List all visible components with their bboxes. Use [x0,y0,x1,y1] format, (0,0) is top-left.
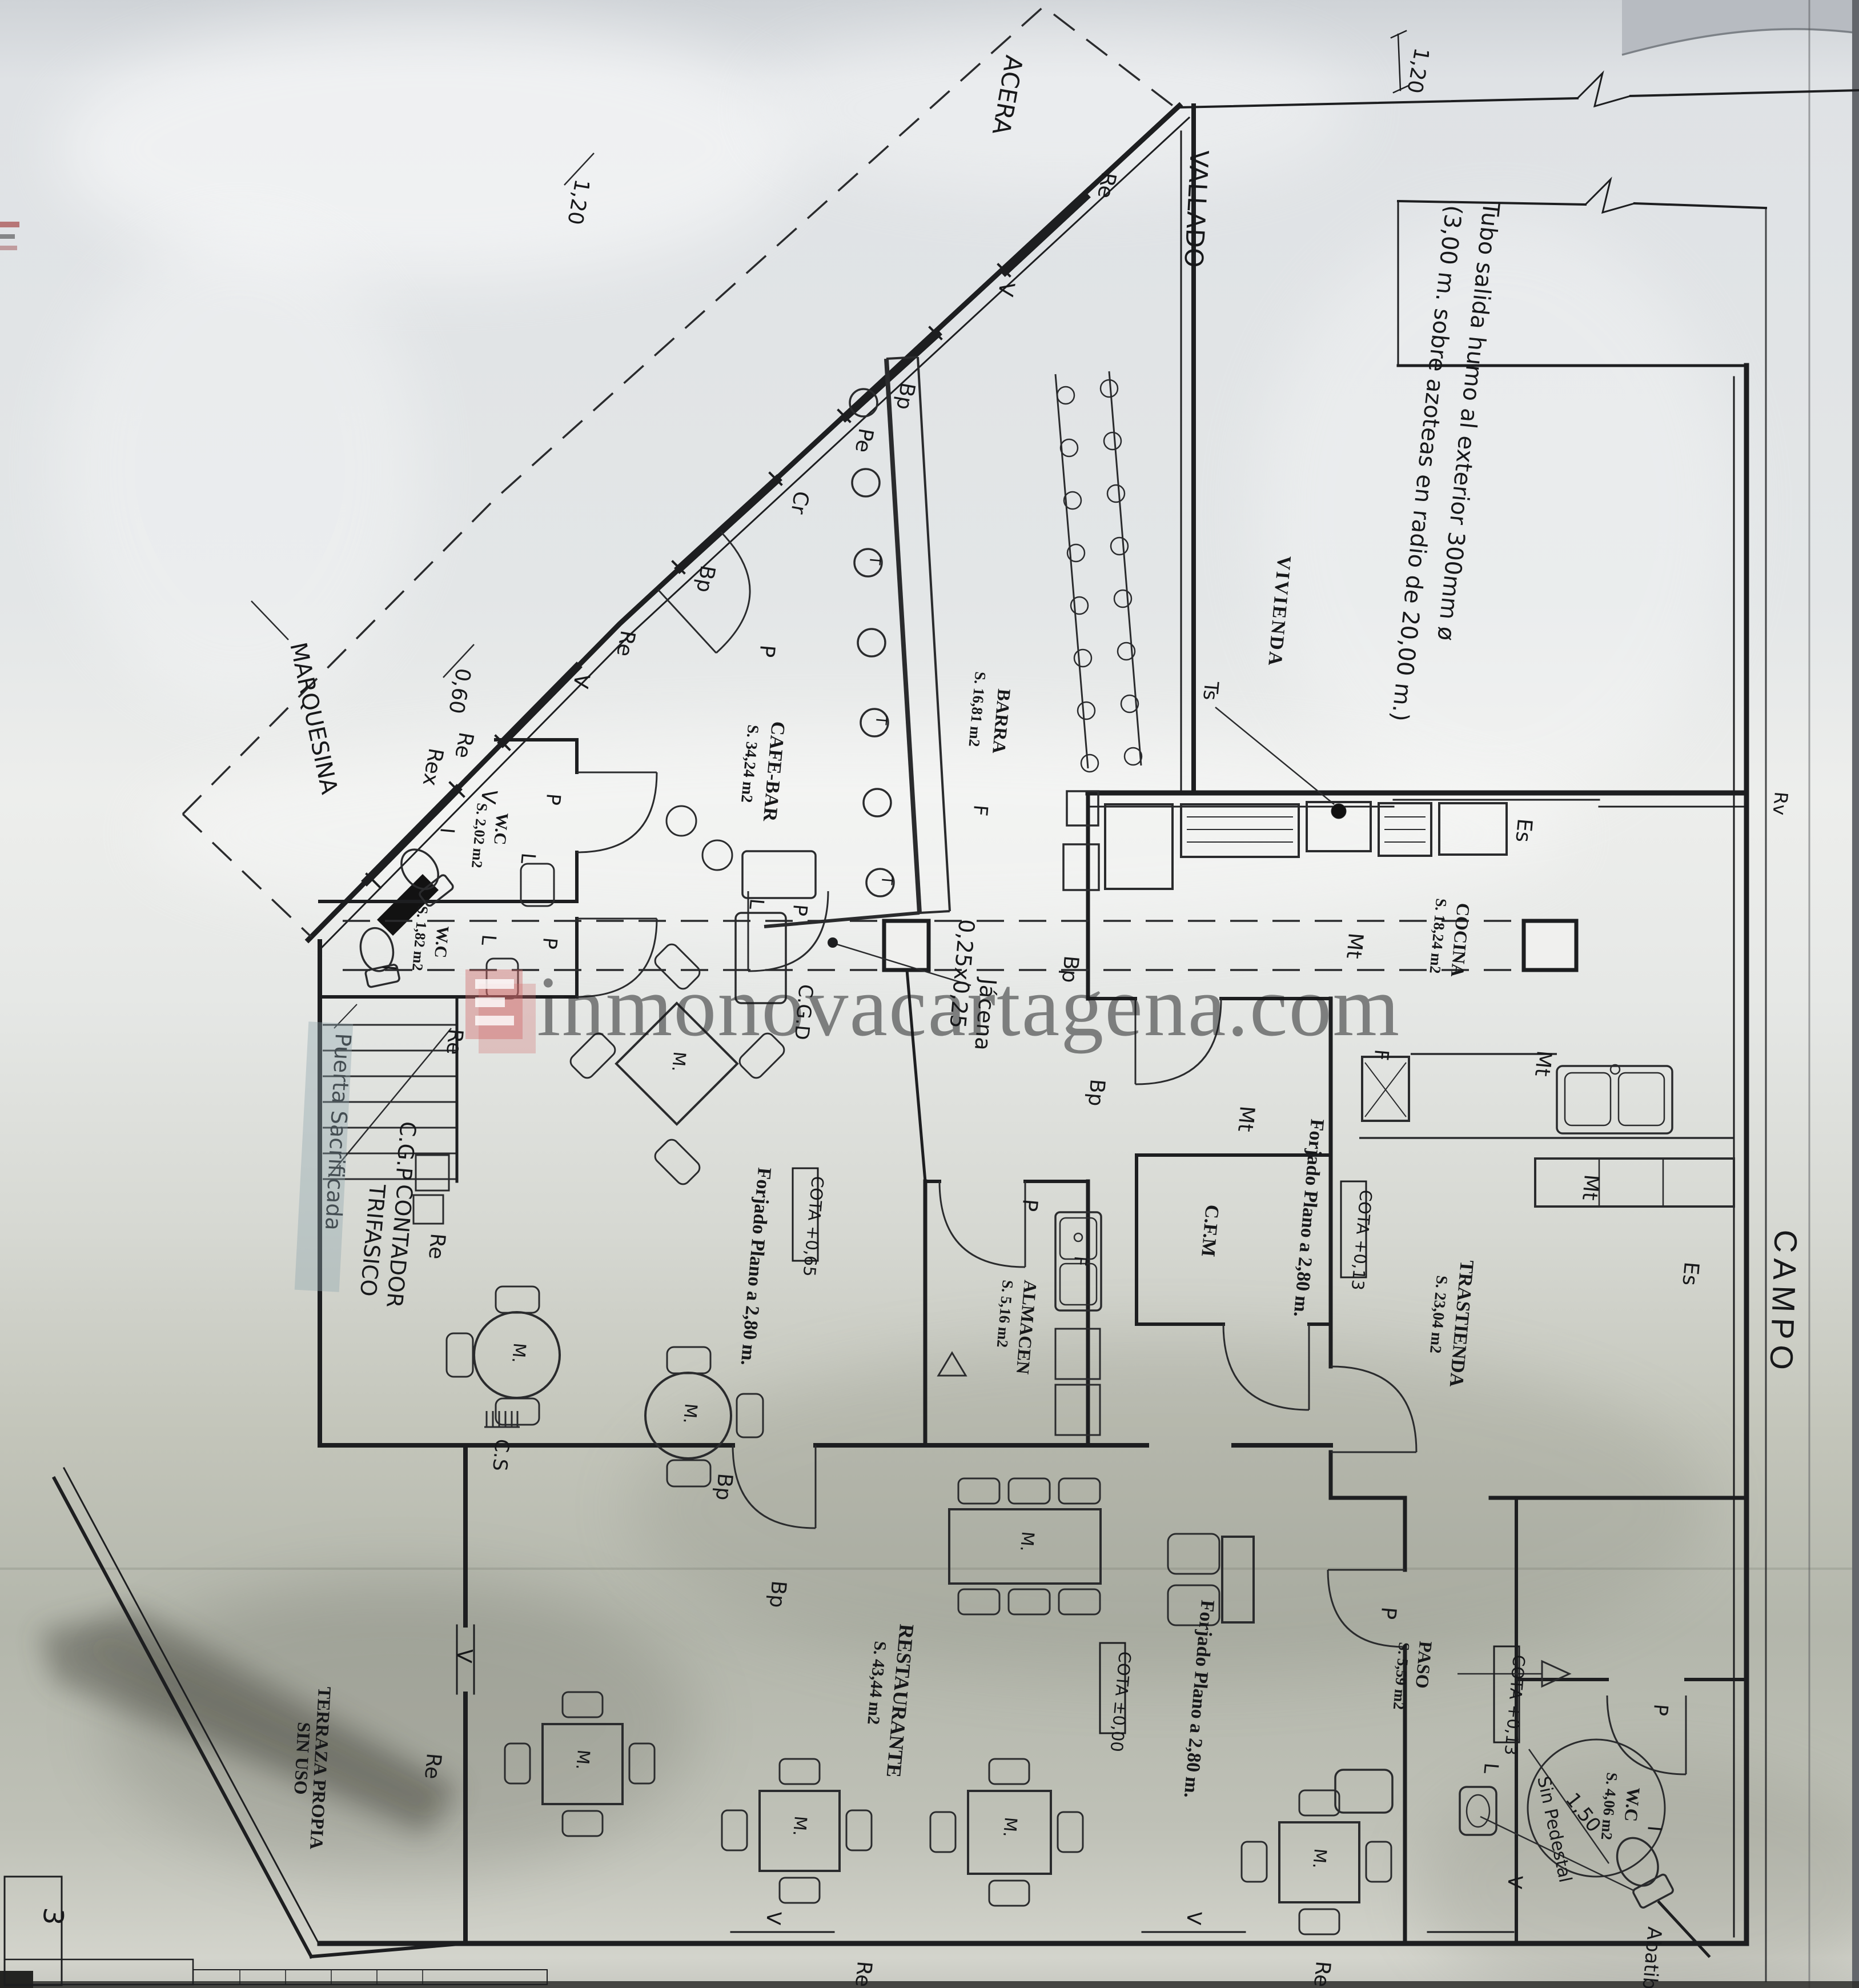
label-re: Re [420,1752,445,1780]
label-m: M. [668,1051,689,1072]
label-m: M. [572,1749,593,1770]
label-m: M. [508,1342,529,1364]
label-cs: C.S [488,1438,513,1472]
label-re: Re [850,1960,876,1988]
floorplan-svg: inmonovacartagena.com ACERA VALLADO MARQ… [0,0,1859,1988]
label-wc1: W.C [490,812,512,845]
label-t: T [878,874,896,885]
label-rv: Rv [1768,791,1792,816]
label-m: M. [679,1402,701,1424]
label-l: L [744,897,768,910]
label-terraza-2: SIN USO [290,1722,315,1795]
label-bp: Bp [711,1472,737,1501]
label-campo: CAMPO [1763,1229,1804,1376]
label-f: F [1070,1255,1090,1266]
label-l: L [516,852,540,864]
scanned-floorplan-page: inmonovacartagena.com ACERA VALLADO MARQ… [0,0,1859,1988]
label-l: L [1479,1762,1503,1774]
label-wc2: W.C [431,925,452,959]
label-re: Re [450,730,477,760]
label-es: Es [1511,817,1536,843]
label-paso: PASO [1412,1640,1436,1689]
label-re: Re [612,628,639,658]
label-p: P [1376,1606,1400,1620]
label-f: F [1369,1048,1393,1061]
label-re: Re [1309,1960,1335,1988]
pillar [1524,921,1576,970]
label-cgp: C.G.P [391,1120,421,1181]
label-re: Re [441,1028,467,1056]
label-v: V [452,1648,476,1664]
label-cr: Cr [786,489,813,516]
label-m: M. [999,1816,1021,1838]
label-bp: Bp [1083,1078,1109,1107]
label-cfm: C.F.M [1197,1204,1223,1257]
label-bp: Bp [1057,955,1083,984]
label-bp: Bp [692,563,720,594]
label-re: Re [1093,170,1120,200]
label-wc3: W.C [1621,1786,1644,1822]
label-v: V [1182,1910,1206,1926]
label-p: P [537,936,561,950]
page-right-edge [1852,0,1859,1988]
label-vallado: VALLADO [1178,149,1214,268]
label-f: F [968,804,992,817]
label-cgd: C.G.D [790,983,817,1041]
watermark: inmonovacartagena.com [465,959,1400,1054]
label-p: P [541,792,565,806]
label-mt: Mt [1530,1049,1556,1077]
label-re: Re [424,1232,449,1260]
label-bp: Bp [765,1580,790,1609]
label-corner-mark: 3 [36,1906,69,1926]
label-v: V [1503,1874,1527,1890]
label-p: P [1648,1703,1672,1717]
label-pe: Pe [850,426,878,454]
label-l: L [476,933,500,946]
label-t: T [872,714,890,726]
label-p: P [788,903,812,917]
label-v: V [761,1910,785,1926]
label-mt: Mt [1233,1105,1259,1133]
label-bp: Bp [892,380,920,411]
label-m: M. [789,1815,810,1837]
label-m: M. [1308,1847,1330,1869]
label-p: P [1017,1198,1042,1212]
label-ts: Ts [1198,680,1223,701]
label-m: M. [1016,1530,1038,1552]
label-t: T [866,554,884,566]
label-mt: Mt [1577,1173,1603,1201]
label-es: Es [1677,1261,1703,1286]
label-mt: Mt [1342,932,1367,960]
label-p: P [754,644,779,658]
